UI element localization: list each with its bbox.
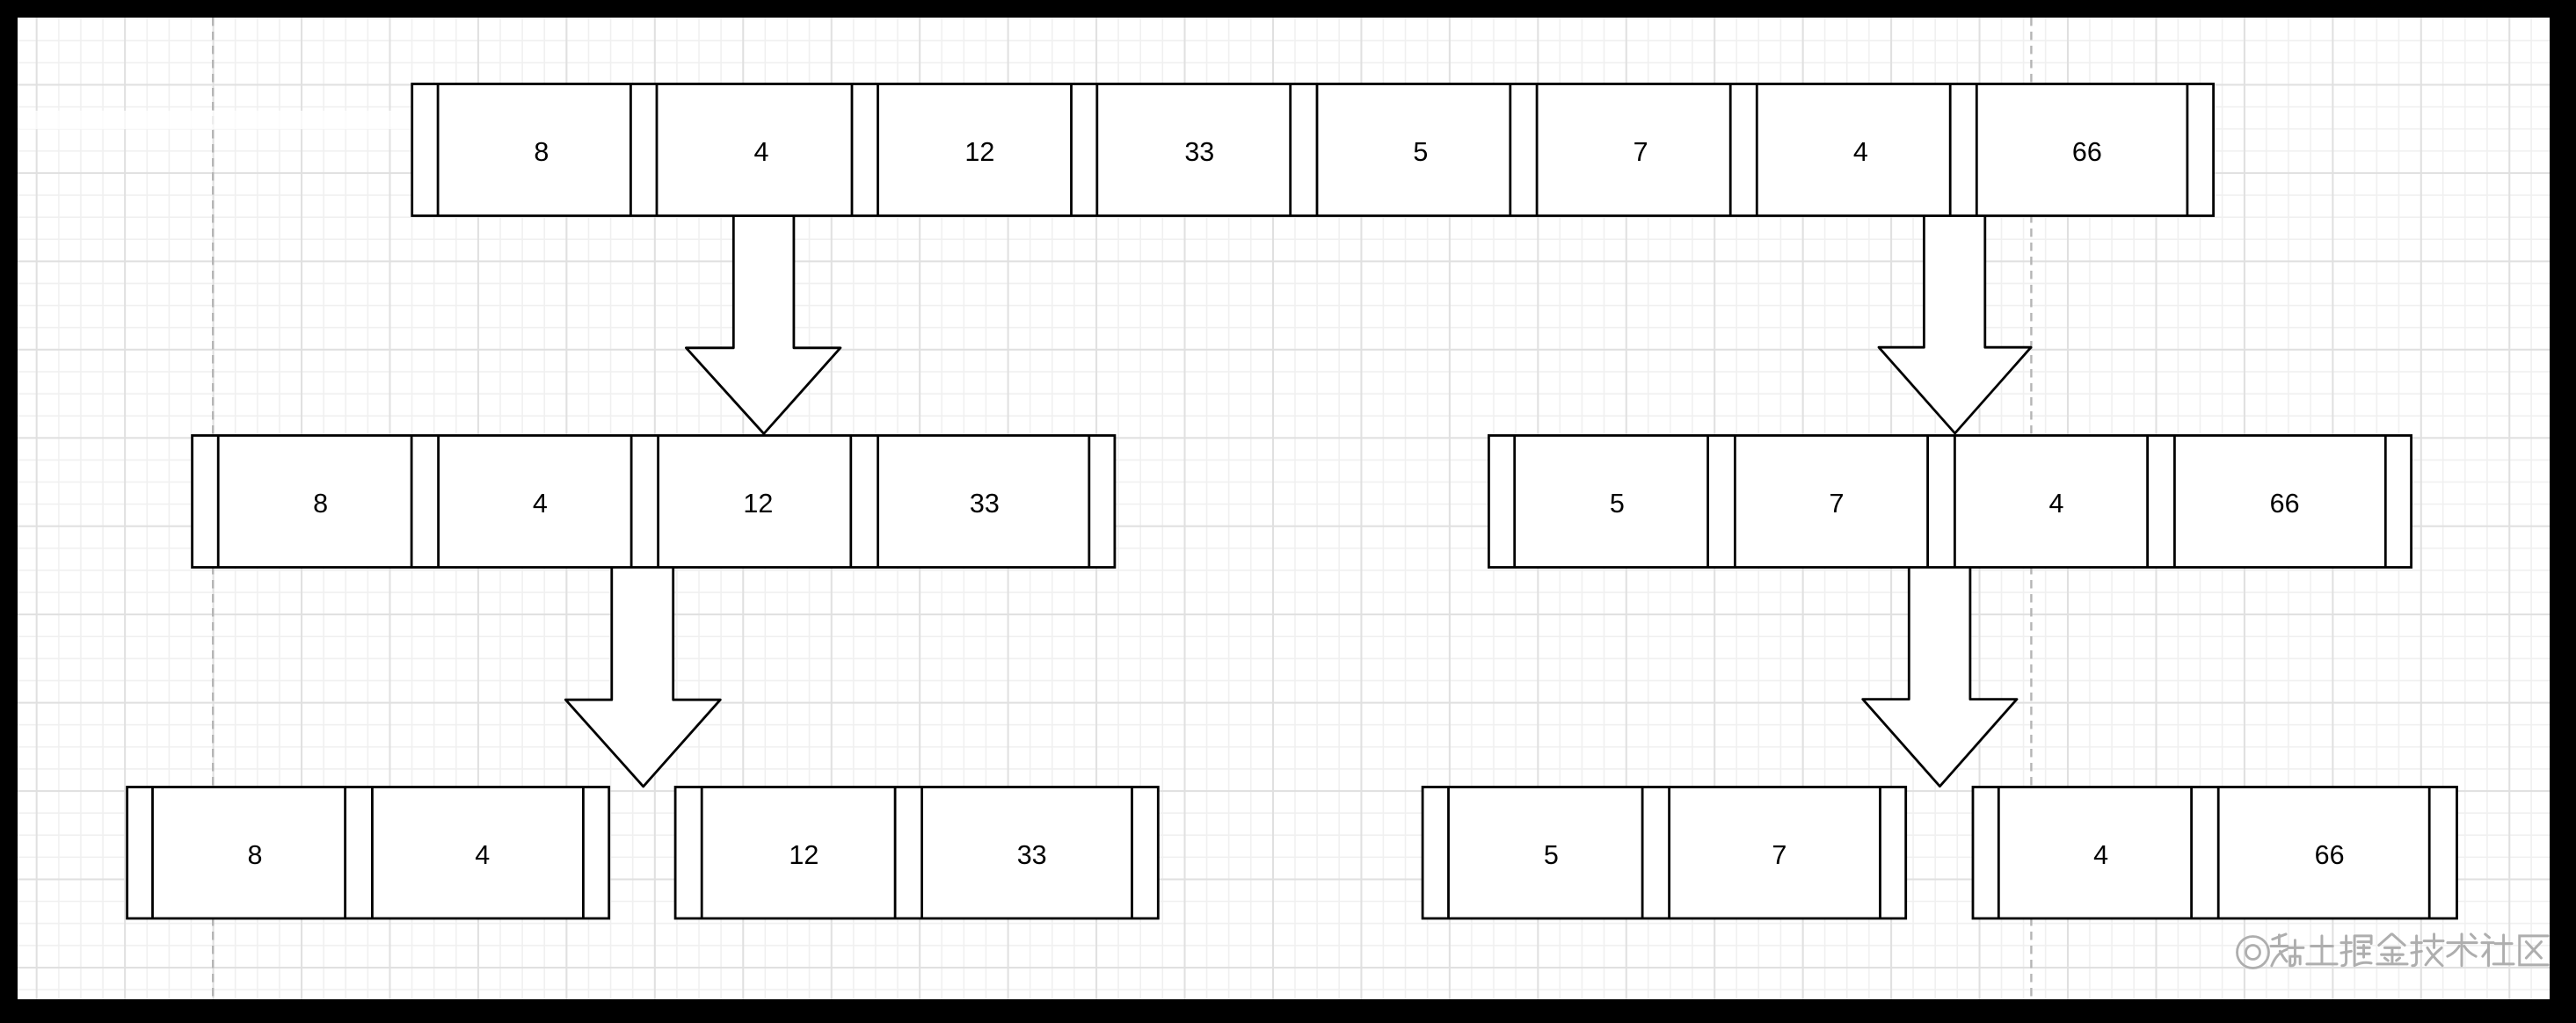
svg-text:5: 5 — [1413, 137, 1428, 167]
svg-text:33: 33 — [970, 489, 1000, 519]
svg-text:66: 66 — [2270, 489, 2300, 519]
svg-text:8: 8 — [313, 489, 328, 519]
svg-text:4: 4 — [2049, 489, 2064, 519]
svg-text:8: 8 — [534, 137, 549, 167]
svg-text:8: 8 — [248, 840, 263, 870]
svg-text:7: 7 — [1634, 137, 1648, 167]
svg-text:12: 12 — [964, 137, 994, 167]
svg-text:4: 4 — [1853, 137, 1868, 167]
svg-text:4: 4 — [533, 489, 548, 519]
svg-text:66: 66 — [2315, 840, 2345, 870]
svg-text:33: 33 — [1017, 840, 1047, 870]
svg-text:4: 4 — [754, 137, 769, 167]
svg-text:7: 7 — [1772, 840, 1786, 870]
svg-text:4: 4 — [475, 840, 490, 870]
svg-text:5: 5 — [1544, 840, 1559, 870]
svg-text:4: 4 — [2093, 840, 2108, 870]
svg-text:12: 12 — [743, 489, 773, 519]
svg-text:66: 66 — [2072, 137, 2102, 167]
svg-text:7: 7 — [1830, 489, 1845, 519]
svg-text:33: 33 — [1184, 137, 1214, 167]
svg-text:12: 12 — [789, 840, 819, 870]
svg-text:5: 5 — [1610, 489, 1625, 519]
